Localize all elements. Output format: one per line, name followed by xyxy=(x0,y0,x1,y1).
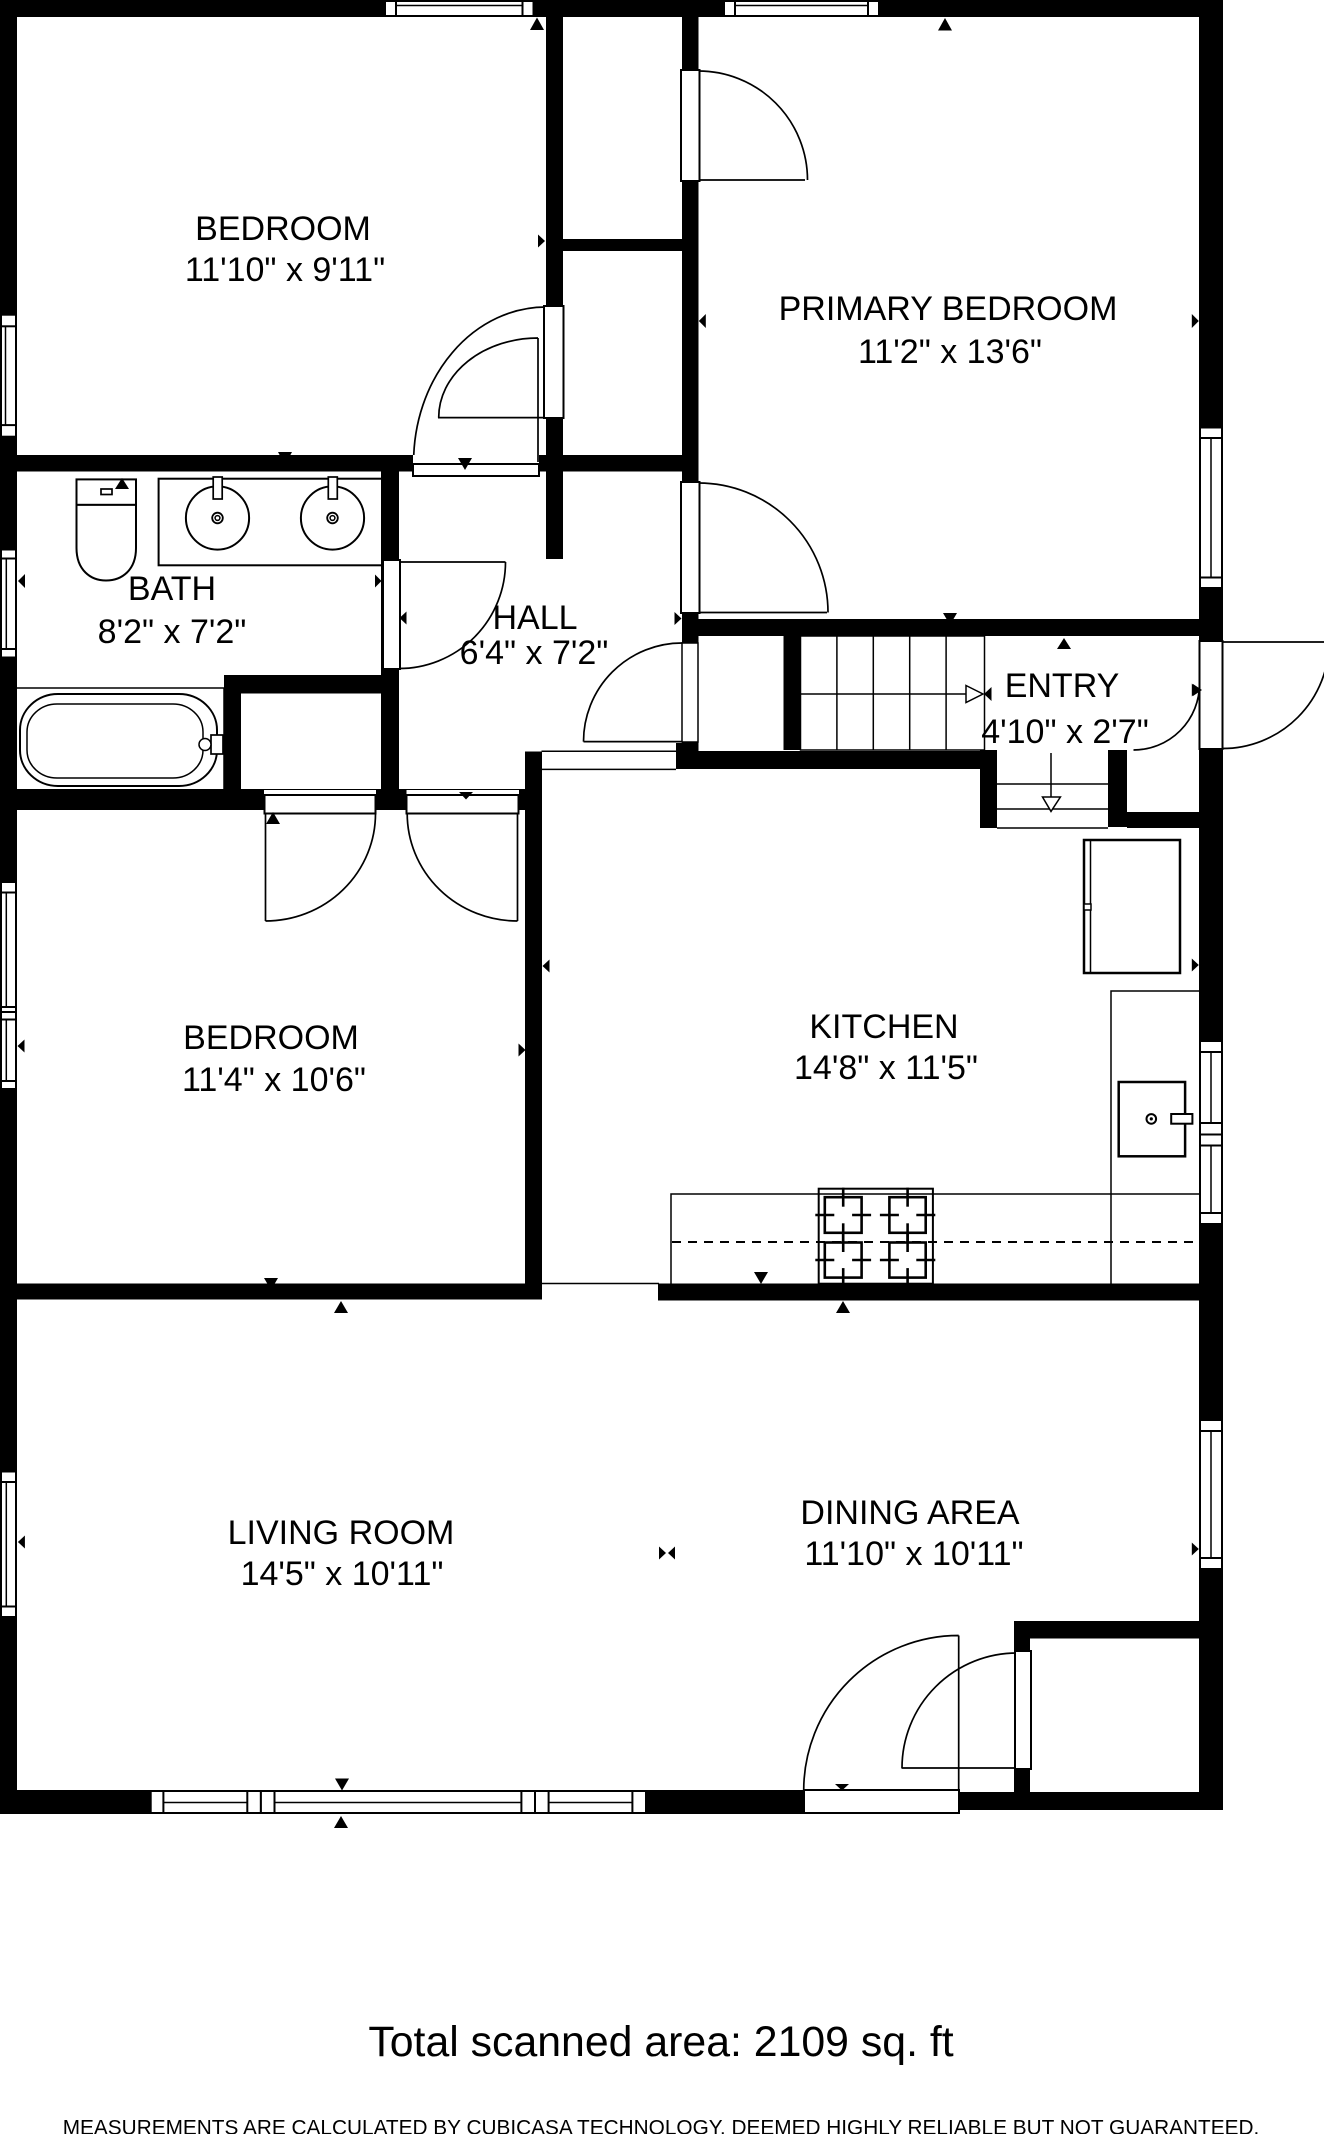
svg-text:14'5" x 10'11": 14'5" x 10'11" xyxy=(241,1555,444,1593)
svg-text:11'2" x 13'6": 11'2" x 13'6" xyxy=(858,333,1042,371)
svg-text:HALL: HALL xyxy=(492,599,577,637)
svg-text:BEDROOM: BEDROOM xyxy=(195,210,371,248)
svg-text:DINING AREA: DINING AREA xyxy=(800,1494,1019,1532)
svg-text:11'4" x 10'6": 11'4" x 10'6" xyxy=(182,1061,366,1099)
svg-text:BATH: BATH xyxy=(128,570,216,608)
svg-text:MEASUREMENTS ARE CALCULATED BY: MEASUREMENTS ARE CALCULATED BY CUBICASA … xyxy=(63,2117,1260,2134)
svg-text:PRIMARY BEDROOM: PRIMARY BEDROOM xyxy=(779,290,1118,328)
svg-text:4'10" x 2'7": 4'10" x 2'7" xyxy=(981,713,1149,751)
svg-text:ENTRY: ENTRY xyxy=(1005,667,1120,705)
svg-text:11'10" x 10'11": 11'10" x 10'11" xyxy=(804,1535,1023,1573)
svg-text:Total scanned area: 2109 sq. f: Total scanned area: 2109 sq. ft xyxy=(368,2018,953,2066)
svg-text:KITCHEN: KITCHEN xyxy=(809,1008,958,1046)
svg-text:BEDROOM: BEDROOM xyxy=(183,1019,359,1057)
svg-text:6'4" x 7'2": 6'4" x 7'2" xyxy=(460,634,609,672)
svg-text:8'2" x 7'2": 8'2" x 7'2" xyxy=(98,613,247,651)
svg-text:14'8" x 11'5": 14'8" x 11'5" xyxy=(794,1049,978,1087)
svg-text:11'10" x 9'11": 11'10" x 9'11" xyxy=(185,251,385,289)
svg-text:LIVING ROOM: LIVING ROOM xyxy=(228,1514,455,1552)
